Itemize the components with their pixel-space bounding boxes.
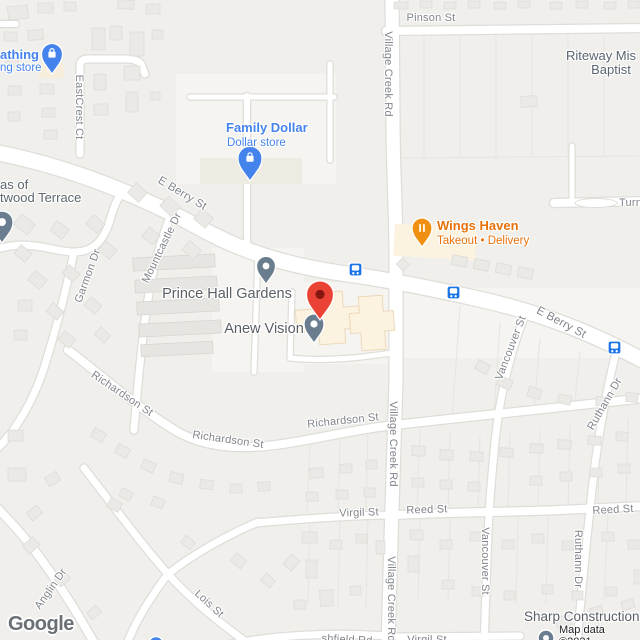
street-label-pinson: Pinson St [407, 12, 456, 24]
street-label-village-creek-mid: Village Creek Rd [387, 401, 399, 487]
sharp-construction-pin-partial[interactable] [538, 630, 554, 640]
bus-stop-icon[interactable] [447, 286, 460, 299]
street-label-virgil: Virgil St [339, 506, 379, 519]
street-label-village-creek-top: Village Creek Rd [382, 31, 394, 117]
street-label-turn: Turn [619, 197, 640, 209]
map-canvas[interactable]: Pinson St Village Creek Rd EastCrest Ct … [0, 0, 640, 640]
poi-label-family-dollar-category[interactable]: Dollar store [227, 137, 286, 150]
apartment-building [141, 341, 214, 357]
map-attribution: Map data ©2021 [559, 624, 640, 640]
apartment-building [139, 320, 222, 337]
street-label-virgil-south: Virgil St [407, 634, 447, 640]
street-label-village-creek-bottom: Village Creek Rd [385, 556, 397, 640]
poi-label-riteway-line2[interactable]: Baptist [591, 63, 631, 77]
area-label-terrace-line2: twood Terrace [0, 191, 81, 205]
poi-label-wings-haven-category[interactable]: Takeout • Delivery [437, 235, 529, 248]
poi-label-family-dollar-name[interactable]: Family Dollar [226, 121, 308, 135]
google-logo[interactable]: Google [8, 613, 74, 636]
poi-pin-partial-bottom[interactable] [149, 637, 164, 640]
bus-stop-icon[interactable] [608, 341, 621, 354]
poi-label-anew-vision[interactable]: Anew Vision [224, 322, 304, 338]
poi-label-sharp-construction[interactable]: Sharp Construction [524, 610, 640, 625]
poi-label-prince-hall-gardens[interactable]: Prince Hall Gardens [162, 287, 292, 303]
street-label-reed-west: Reed St [406, 503, 448, 517]
street-label-reed-east: Reed St [592, 503, 634, 517]
street-label-vancouver-south: Vancouver St [479, 527, 491, 595]
poi-label-wings-haven-name[interactable]: Wings Haven [437, 219, 519, 233]
street-label-eastcrest: EastCrest Ct [73, 75, 85, 140]
poi-label-clothing-store-name[interactable]: athing [0, 48, 39, 62]
bus-stop-icon[interactable] [349, 263, 362, 276]
poi-label-clothing-store-category[interactable]: ng store [0, 62, 42, 75]
street-label-ruthann-south: Ruthann Dr [572, 530, 584, 588]
poi-pin-partial-left[interactable] [0, 211, 13, 243]
